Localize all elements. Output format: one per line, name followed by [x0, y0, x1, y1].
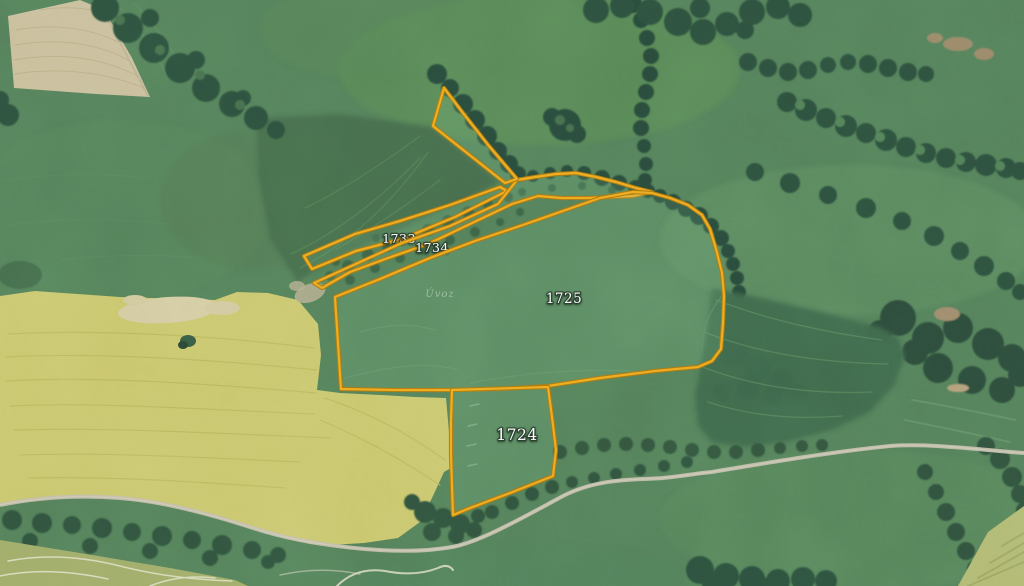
map-canvas[interactable]: 1733173417251724 Úvoz — [0, 0, 1024, 586]
blotch-overlay — [0, 0, 1024, 586]
aerial-map-viewport[interactable]: 1733173417251724 Úvoz — [0, 0, 1024, 586]
